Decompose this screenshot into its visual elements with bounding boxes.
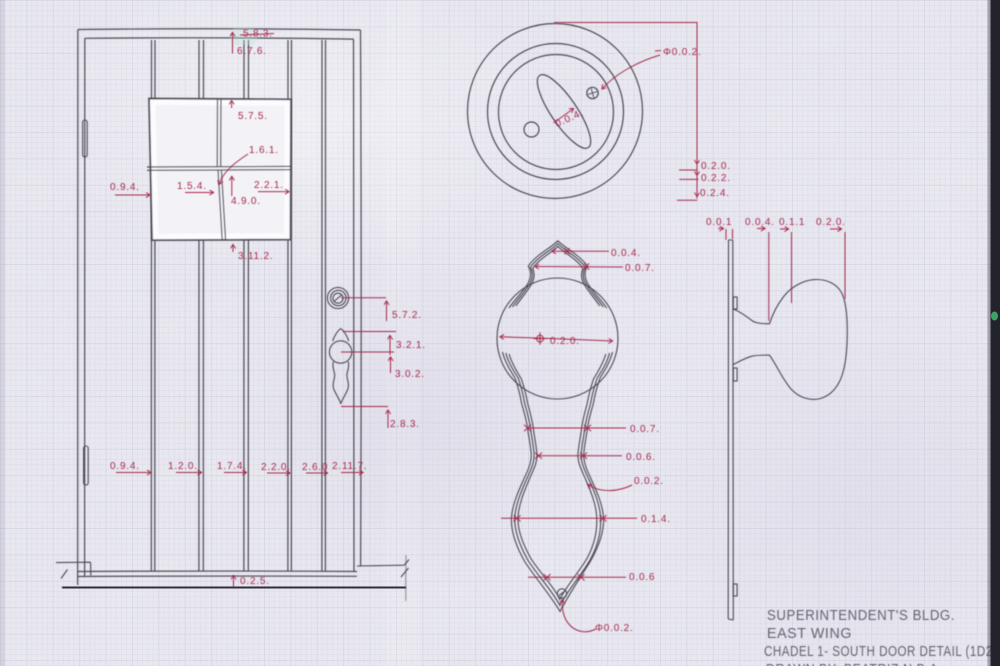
svg-text:0.1.4.: 0.1.4.	[641, 514, 671, 525]
svg-text:0.0.2.: 0.0.2.	[634, 476, 664, 487]
svg-text:0.2.0.: 0.2.0.	[816, 217, 846, 228]
svg-text:2.2.0.: 2.2.0.	[261, 462, 291, 473]
svg-text:0.9.4.: 0.9.4.	[110, 461, 140, 472]
svg-text:3.11.2.: 3.11.2.	[238, 251, 273, 262]
svg-text:2.2.1.: 2.2.1.	[254, 180, 284, 191]
svg-text:0.2.0.: 0.2.0.	[550, 336, 580, 347]
svg-text:0.0.7.: 0.0.7.	[630, 424, 660, 435]
svg-text:Φ0.0.2.: Φ0.0.2.	[663, 47, 702, 58]
svg-text:0.0.1: 0.0.1	[706, 217, 732, 228]
svg-text:2.11.7.: 2.11.7.	[332, 461, 367, 472]
svg-text:0.2.0.: 0.2.0.	[701, 161, 731, 172]
svg-text:2.6.0: 2.6.0	[302, 462, 328, 473]
svg-text:CHADEL 1- SOUTH DOOR DETAIL (1: CHADEL 1- SOUTH DOOR DETAIL (1D2)	[764, 644, 997, 660]
svg-text:0.0.7.: 0.0.7.	[625, 263, 655, 274]
svg-text:0.0.6: 0.0.6	[629, 572, 655, 583]
svg-text:0.2.2.: 0.2.2.	[701, 173, 731, 184]
svg-text:0.9.4.: 0.9.4.	[110, 182, 140, 193]
svg-text:DRAWN BY: BEATRIZ N.B.A.: DRAWN BY: BEATRIZ N.B.A.	[766, 662, 942, 666]
svg-text:0.2.4.: 0.2.4.	[700, 188, 730, 199]
svg-text:0.0.4.: 0.0.4.	[611, 248, 641, 259]
svg-text:EAST WING: EAST WING	[767, 626, 852, 642]
svg-text:5.7.2.: 5.7.2.	[392, 310, 422, 321]
svg-text:1.7.4.: 1.7.4.	[217, 461, 247, 472]
svg-text:1.5.4.: 1.5.4.	[177, 181, 207, 192]
svg-text:4.9.0.: 4.9.0.	[231, 196, 261, 207]
svg-text:2.8.3.: 2.8.3.	[390, 419, 420, 430]
svg-text:5.8.3.: 5.8.3.	[243, 29, 273, 40]
svg-text:1.2.0.: 1.2.0.	[168, 461, 198, 472]
svg-text:3.0.2.: 3.0.2.	[395, 369, 425, 380]
svg-text:0.2.5.: 0.2.5.	[240, 576, 270, 587]
svg-text:Φ0.0.2.: Φ0.0.2.	[595, 623, 634, 634]
svg-text:1.6.1.: 1.6.1.	[249, 145, 279, 156]
svg-text:6.7.6.: 6.7.6.	[237, 46, 267, 57]
svg-text:3.2.1.: 3.2.1.	[396, 340, 426, 351]
svg-text:SUPERINTENDENT'S BLDG.: SUPERINTENDENT'S BLDG.	[767, 608, 955, 624]
svg-text:0.1.1: 0.1.1	[779, 217, 805, 228]
svg-text:5.7.5.: 5.7.5.	[238, 111, 268, 122]
svg-text:0.0.6.: 0.0.6.	[626, 452, 656, 463]
svg-text:0.0.4.: 0.0.4.	[745, 217, 775, 228]
